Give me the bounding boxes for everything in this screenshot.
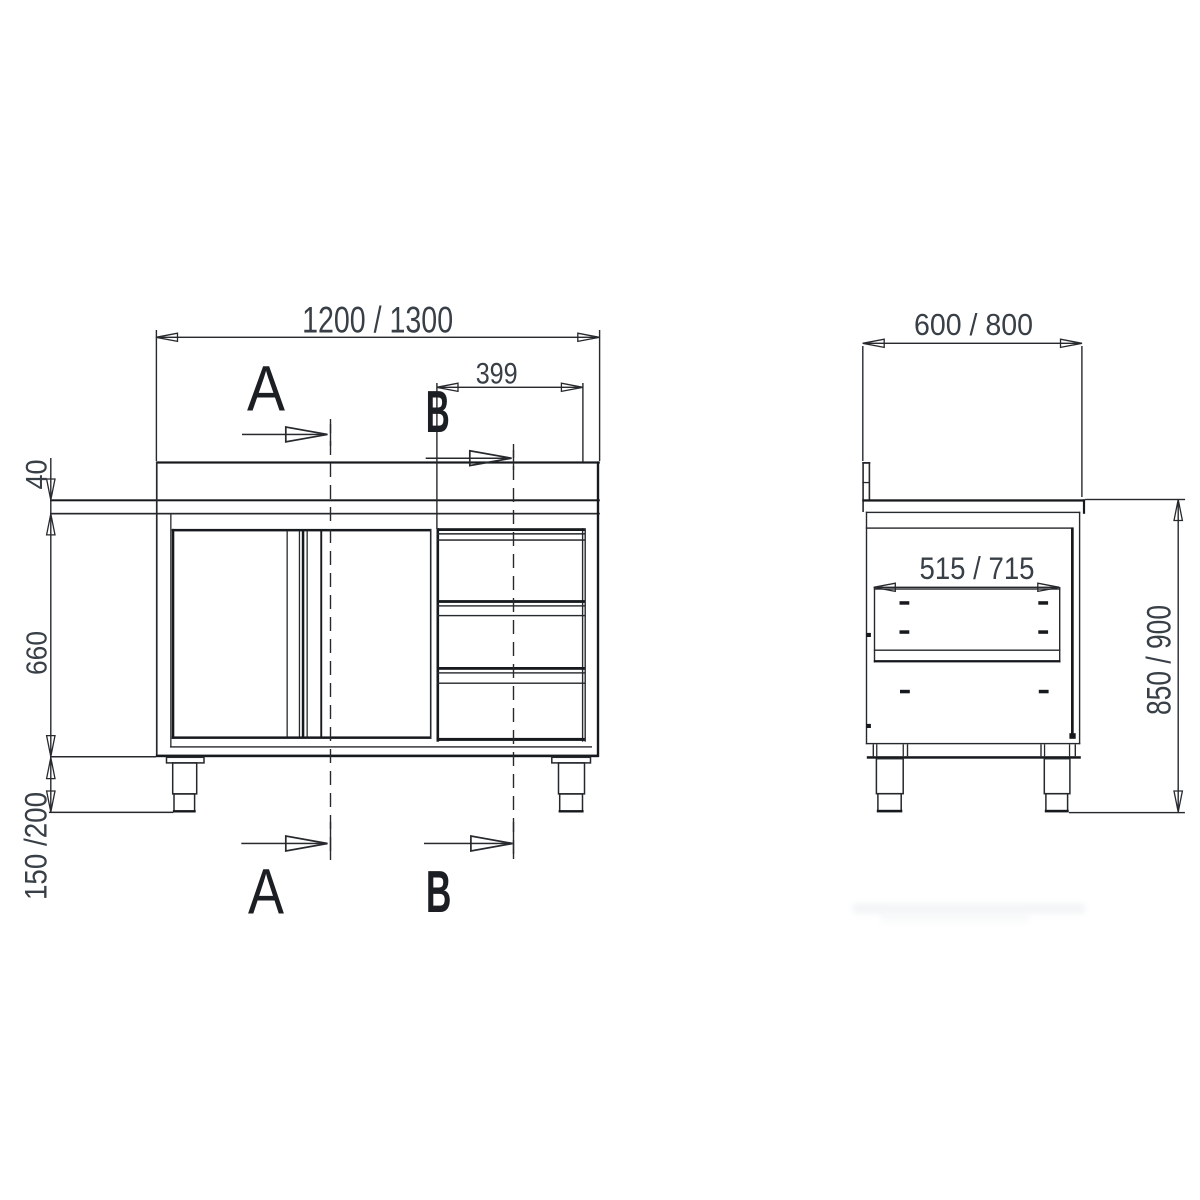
svg-text:1200 / 1300: 1200 / 1300 [302,300,453,341]
svg-text:B: B [426,858,452,925]
svg-text:399: 399 [476,357,518,390]
svg-text:B: B [426,378,450,445]
svg-text:A: A [247,353,285,425]
svg-text:515 / 715: 515 / 715 [920,550,1035,586]
svg-text:150 /200: 150 /200 [18,792,54,900]
svg-text:40: 40 [21,460,54,490]
svg-text:850 / 900: 850 / 900 [1141,605,1179,715]
svg-text:A: A [248,855,284,927]
svg-text:600 / 800: 600 / 800 [914,308,1033,342]
svg-text:660: 660 [22,631,54,675]
